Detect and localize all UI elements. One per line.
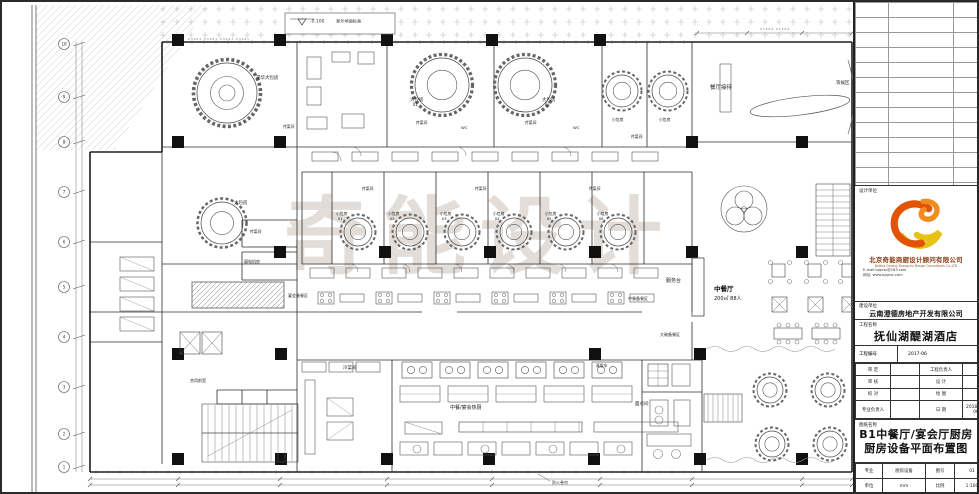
svg-text:传菜间: 传菜间 (362, 186, 374, 191)
svg-text:7: 7 (63, 190, 66, 195)
svg-text:防火卷帘: 防火卷帘 (552, 479, 568, 485)
svg-text:中餐/宴会热厨: 中餐/宴会热厨 (450, 404, 482, 411)
project-label: 工程名称 (855, 320, 977, 328)
svg-text:4: 4 (63, 335, 66, 340)
svg-text:中餐备餐区: 中餐备餐区 (628, 295, 648, 301)
svg-text:传菜间: 传菜间 (416, 120, 428, 125)
svg-text:02: 02 (545, 102, 551, 107)
svg-text:传菜间: 传菜间 (525, 120, 537, 125)
design-unit-label: 设计单位 (855, 186, 977, 194)
svg-text:大包房: 大包房 (234, 199, 248, 206)
svg-text:10: 10 (61, 42, 67, 47)
svg-text:5: 5 (63, 285, 66, 290)
revision-table (855, 2, 977, 185)
svg-text:200㎡ 88人: 200㎡ 88人 (714, 295, 742, 302)
svg-text:大碗备餐区: 大碗备餐区 (660, 331, 680, 337)
svg-text:传菜间: 传菜间 (631, 134, 643, 139)
svg-text:室外地面标高: 室外地面标高 (336, 18, 361, 25)
client-name: 云南澄德房地产开发有限公司 (855, 309, 977, 319)
svg-text:弱电机房: 弱电机房 (244, 258, 260, 264)
svg-text:传菜间: 传菜间 (589, 186, 601, 191)
drawing-name-section: 图纸名称 B1中餐厅/宴会厅厨房 厨房设备平面布置图 (855, 419, 977, 462)
company-website: 网址: www.bjqnsc.com (855, 273, 977, 278)
svg-text:小包房: 小包房 (659, 117, 671, 122)
floor-plan-drawing: 10987654321C3041 C3041 C3041 C3041C1504 … (2, 2, 855, 494)
svg-text:面点间: 面点间 (635, 400, 649, 407)
sheet-info-table: 专业厨房设备图号01单位mm比例1:100 (855, 462, 977, 494)
drawing-name-label: 图纸名称 (855, 420, 977, 428)
drawing-sheet: 奇能设计 10987654321C3041 C3041 C3041 C3041C… (0, 0, 979, 494)
svg-text:02: 02 (390, 216, 395, 221)
project-section: 工程名称 抚仙湖醍湖酒店 (855, 319, 977, 345)
title-block: 设计单位 北京奇能商厨设计顾问有限公司 Beijing Qineng Shang… (853, 2, 977, 492)
svg-text:1: 1 (63, 465, 66, 470)
svg-text:小包房: 小包房 (612, 117, 624, 122)
svg-text:传菜间: 传菜间 (475, 186, 487, 191)
svg-text:中餐厅: 中餐厅 (714, 284, 734, 293)
svg-text:6: 6 (63, 240, 66, 245)
svg-text:蒸饭车: 蒸饭车 (596, 363, 608, 368)
svg-text:05: 05 (547, 216, 552, 221)
svg-text:服务台: 服务台 (666, 277, 681, 284)
svg-text:03: 03 (442, 216, 447, 221)
svg-text:餐厅接待: 餐厅接待 (710, 83, 733, 91)
svg-text:传菜间: 传菜间 (283, 124, 295, 129)
svg-text:9: 9 (63, 95, 66, 100)
svg-text:WC: WC (573, 125, 580, 130)
svg-text:04: 04 (495, 216, 500, 221)
svg-text:06: 06 (599, 216, 604, 221)
design-unit-section: 设计单位 北京奇能商厨设计顾问有限公司 Beijing Qineng Shang… (855, 185, 977, 301)
svg-text:宴会备餐区: 宴会备餐区 (288, 292, 308, 298)
personnel-table: 审 定工程负责人审 核设 计校 对绘 图专业负责人日 期2018-01-06 (855, 362, 977, 419)
svg-text:C1504 C1504: C1504 C1504 (760, 27, 790, 31)
project-number-row: 工程编号 2017-06 (855, 345, 977, 362)
svg-text:WC: WC (461, 125, 468, 130)
client-label: 建设单位 (855, 302, 977, 309)
svg-text:冷菜间: 冷菜间 (343, 364, 357, 371)
svg-text:C3041 C3041 C3041 C3041: C3041 C3041 C3041 C3041 (188, 37, 250, 41)
svg-text:2: 2 (63, 432, 66, 437)
project-number-value: 2017-06 (898, 346, 977, 362)
drawing-name-line2: 厨房设备平面布置图 (855, 442, 977, 456)
svg-text:01: 01 (413, 102, 419, 107)
svg-text:8: 8 (63, 140, 66, 145)
project-number-label: 工程编号 (855, 346, 898, 362)
drawing-name-line1: B1中餐厅/宴会厅厨房 (855, 428, 977, 442)
svg-text:01: 01 (338, 216, 343, 221)
svg-text:合用前室: 合用前室 (190, 377, 206, 383)
project-name: 抚仙湖醍湖酒店 (855, 328, 977, 344)
svg-text:-0.100: -0.100 (310, 19, 325, 25)
svg-text:传菜间: 传菜间 (250, 229, 262, 234)
client-section: 建设单位 云南澄德房地产开发有限公司 (855, 301, 977, 319)
company-name-cn: 北京奇能商厨设计顾问有限公司 (855, 255, 977, 264)
svg-text:等候区: 等候区 (836, 79, 850, 86)
company-logo-dragon-icon (887, 196, 945, 254)
svg-text:豪华大包房: 豪华大包房 (256, 74, 279, 81)
svg-text:3: 3 (63, 385, 66, 390)
